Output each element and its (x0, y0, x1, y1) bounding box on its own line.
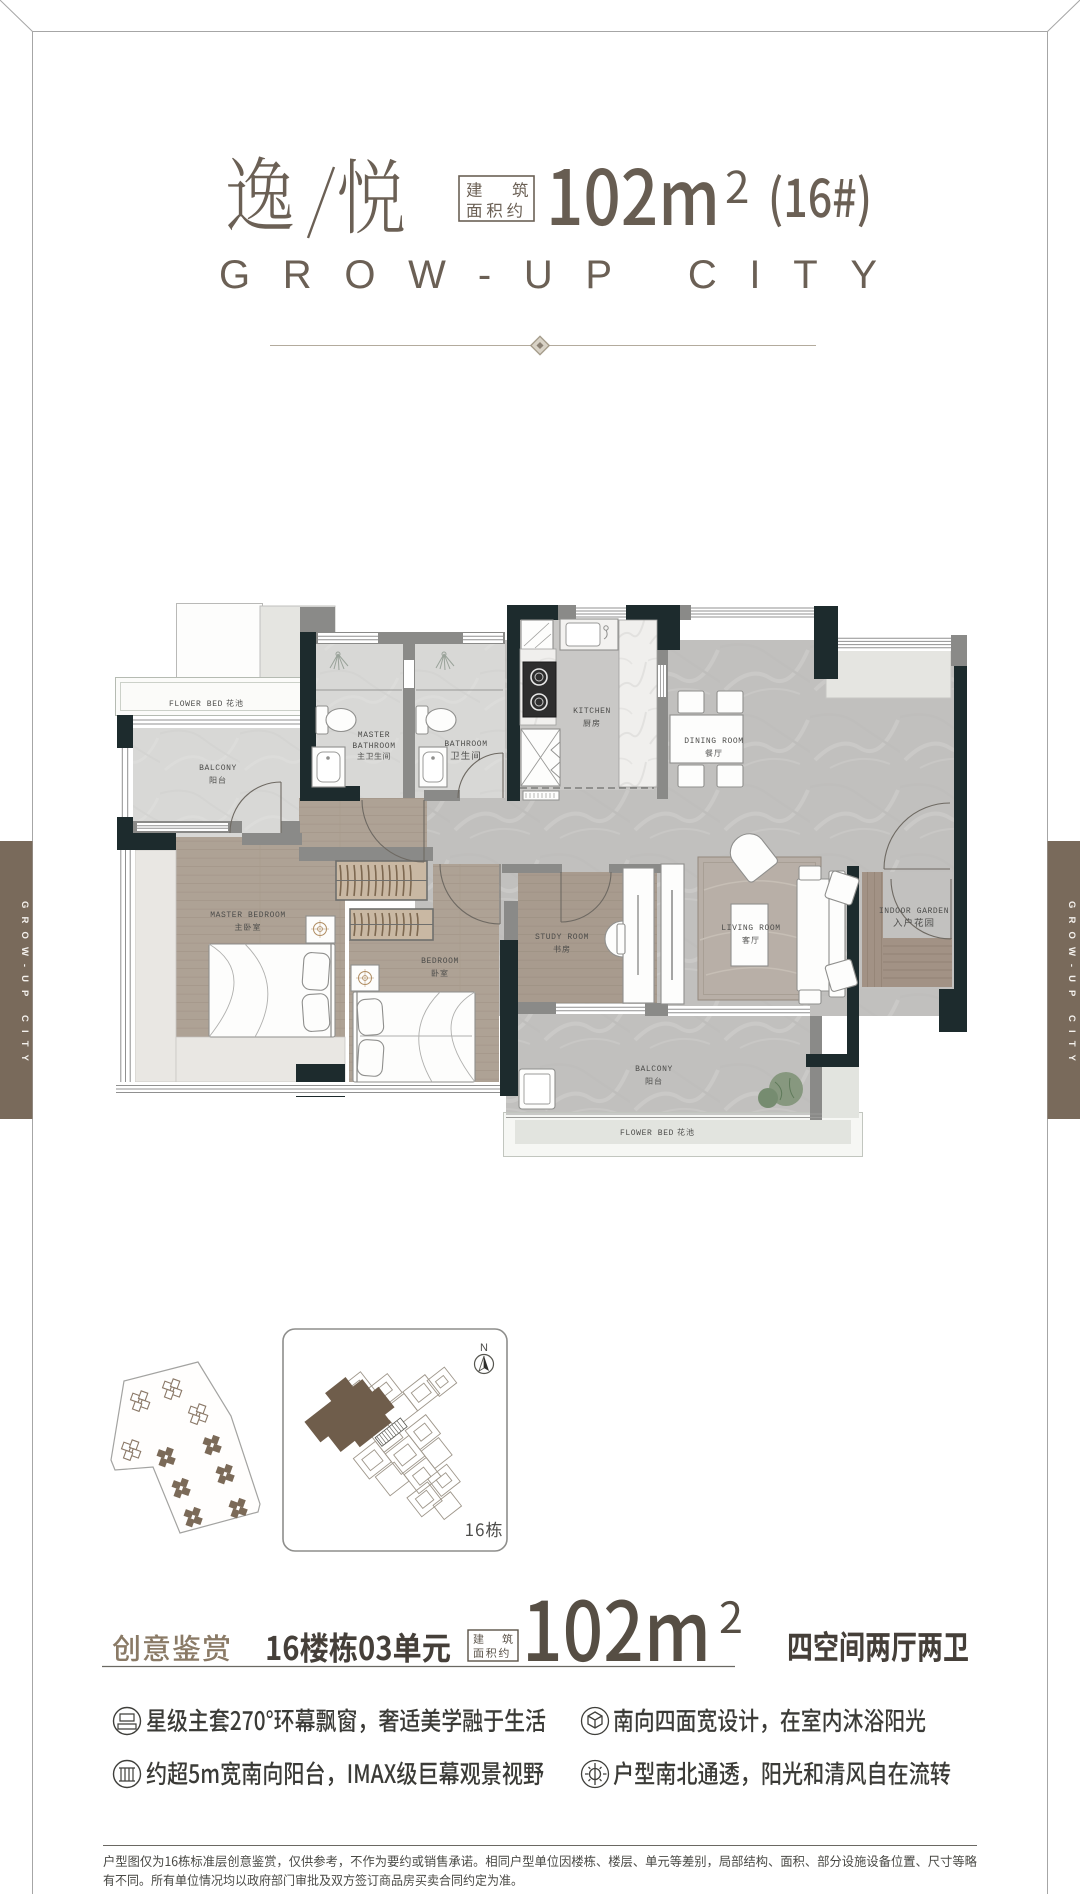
svg-text:FLOWER BED: FLOWER BED (620, 1129, 674, 1138)
svg-text:STUDY ROOM: STUDY ROOM (535, 933, 589, 942)
svg-text:MASTER BEDROOM: MASTER BEDROOM (210, 911, 286, 920)
svg-text:BEDROOM: BEDROOM (421, 957, 459, 966)
svg-text:BATHROOM: BATHROOM (444, 740, 487, 749)
svg-text:KITCHEN: KITCHEN (573, 707, 611, 716)
svg-text:BALCONY: BALCONY (635, 1065, 673, 1074)
svg-text:FLOWER BED: FLOWER BED (169, 700, 223, 709)
svg-text:BALCONY: BALCONY (199, 764, 237, 773)
svg-text:DINING ROOM: DINING ROOM (684, 737, 743, 746)
svg-text:LIVING ROOM: LIVING ROOM (721, 924, 780, 933)
svg-text:INDOOR GARDEN: INDOOR GARDEN (879, 907, 949, 916)
svg-text:GROW-UP CITY: GROW-UP CITY (219, 253, 877, 297)
svg-text:N: N (480, 1342, 488, 1354)
svg-text:BATHROOM: BATHROOM (352, 742, 395, 751)
svg-text:MASTER: MASTER (358, 731, 390, 740)
